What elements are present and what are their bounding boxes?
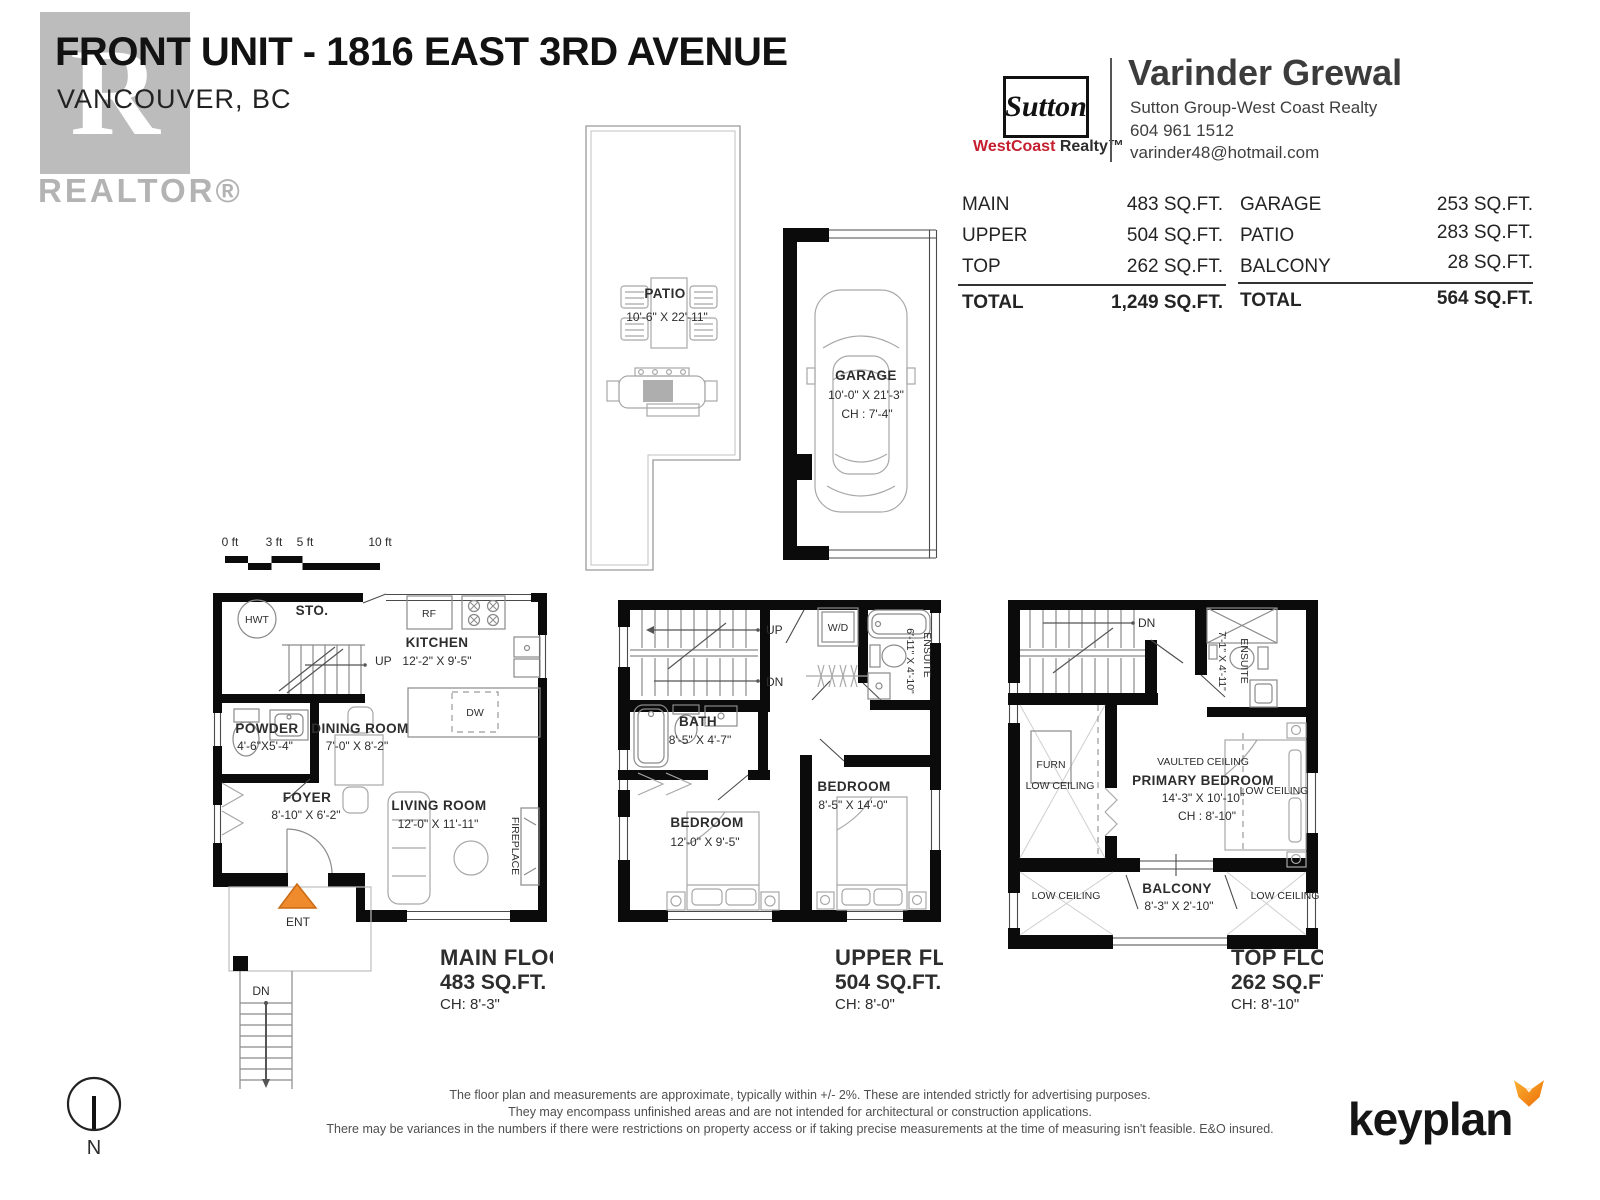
- floor-area-upper: 504 SQ.FT.: [835, 971, 941, 994]
- room-dims-foyer: 8'-10" X 6'-2": [271, 808, 340, 822]
- page-title: FRONT UNIT - 1816 EAST 3RD AVENUE: [55, 30, 788, 75]
- bedroom2-furniture: [817, 797, 926, 910]
- label-low-ceiling-bottom-left: LOW CEILING: [1032, 890, 1101, 902]
- realty-text: Realty™: [1055, 138, 1123, 155]
- area-row-value: 283 SQ.FT.: [1378, 222, 1533, 244]
- room-label-bedroom2: BEDROOM: [817, 779, 890, 794]
- floor-title-top: TOP FLOOR: [1231, 945, 1323, 970]
- disclaimer-line-2: They may encompass unfinished areas and …: [200, 1105, 1400, 1119]
- room-label-bath: BATH: [679, 714, 717, 729]
- patio-plan: PATIO 10'-6" X 22'-11": [583, 118, 743, 578]
- room-label-bedroom1: BEDROOM: [670, 815, 743, 830]
- area-row-label: PATIO: [1240, 225, 1294, 247]
- room-label-foyer: FOYER: [283, 790, 332, 805]
- header-divider: [1110, 58, 1112, 162]
- scale-label-0: 0 ft: [222, 535, 239, 549]
- room-label-patio: PATIO: [644, 286, 685, 301]
- realtor-wordmark: REALTOR®: [38, 172, 243, 210]
- label-up: UP: [375, 654, 392, 668]
- label-low-ceiling-bottom-right: LOW CEILING: [1251, 890, 1320, 902]
- agent-email: varinder48@hotmail.com: [1130, 143, 1319, 163]
- area-summary-table: MAIN 483 SQ.FT. UPPER 504 SQ.FT. TOP 262…: [948, 188, 1538, 318]
- area-total-value: 564 SQ.FT.: [1378, 288, 1533, 310]
- upper-floor-walls: [618, 600, 941, 922]
- keyplan-wordmark: keyplan: [1348, 1093, 1512, 1145]
- main-floor-walls: [213, 593, 547, 922]
- room-label-garage: GARAGE: [835, 368, 897, 383]
- room-dims-dining: 7'-0" X 8'-2": [326, 739, 388, 753]
- label-low-ceiling-upper-left: LOW CEILING: [1026, 780, 1095, 792]
- label-ent: ENT: [286, 915, 311, 929]
- patio-bbq: [607, 368, 717, 416]
- label-fireplace: FIREPLACE: [509, 817, 521, 875]
- top-floor-plan: DN ENSUITE 7'-1" X 4'-11" FURN LOW CEILI…: [1003, 593, 1323, 1013]
- page-subtitle: VANCOUVER, BC: [57, 84, 292, 115]
- room-dims-balcony: 8'-3" X 2'-10": [1144, 899, 1213, 913]
- scale-bar: 0 ft 3 ft 5 ft 10 ft: [212, 532, 392, 577]
- area-row-label: MAIN: [962, 194, 1010, 216]
- label-hwt: HWT: [245, 614, 269, 626]
- agent-company: Sutton Group-West Coast Realty: [1130, 98, 1377, 118]
- label-vaulted-ceiling: VAULTED CEILING: [1157, 756, 1249, 768]
- floorplan-flyer: R REALTOR® FRONT UNIT - 1816 EAST 3RD AV…: [0, 0, 1600, 1200]
- room-label-kitchen: KITCHEN: [406, 635, 469, 650]
- label-dw: DW: [466, 707, 484, 719]
- floor-title-upper: UPPER FLOOR: [835, 945, 943, 970]
- area-row-value: 262 SQ.FT.: [1078, 256, 1223, 278]
- room-label-ensuite: ENSUITE: [1238, 638, 1250, 684]
- label-up: UP: [766, 623, 783, 637]
- area-row-value: 28 SQ.FT.: [1378, 252, 1533, 274]
- table-rule: [1238, 282, 1533, 284]
- room-label-powder: POWDER: [235, 721, 298, 736]
- disclaimer-line-3: There may be variances in the numbers if…: [200, 1122, 1400, 1136]
- area-total-label: TOTAL: [1240, 290, 1302, 312]
- table-rule: [958, 284, 1226, 286]
- label-furn: FURN: [1036, 759, 1065, 771]
- fireplace: [521, 808, 539, 885]
- room-label-balcony: BALCONY: [1142, 881, 1212, 896]
- label-dn: DN: [252, 984, 269, 998]
- floor-area-top: 262 SQ.FT.: [1231, 971, 1323, 994]
- main-floor-stairs: [279, 645, 367, 694]
- main-floor-plan: HWT RF DW: [213, 593, 553, 1098]
- room-dims-garage: 10'-0" X 21'-3": [828, 388, 904, 402]
- agent-phone: 604 961 1512: [1130, 121, 1234, 141]
- area-total-label: TOTAL: [962, 292, 1024, 314]
- area-row-label: UPPER: [962, 225, 1027, 247]
- hwt-tank: HWT: [238, 600, 276, 638]
- room-dims-bath: 8'-5" X 4'-7": [669, 733, 731, 747]
- sutton-logo-text: Sutton: [1005, 90, 1087, 124]
- scale-bar-segments: [225, 556, 380, 570]
- north-arrow: N: [58, 1048, 134, 1163]
- upper-floor-plan: UP DN W/D ENSUITE 6'-11" X 4'-10" BATH 8…: [608, 593, 943, 1013]
- area-row-value: 483 SQ.FT.: [1078, 194, 1223, 216]
- westcoast-text: WestCoast: [973, 138, 1055, 155]
- north-label: N: [87, 1137, 101, 1159]
- scale-label-10: 10 ft: [368, 535, 392, 549]
- label-wd: W/D: [828, 622, 849, 634]
- area-row-label: BALCONY: [1240, 256, 1331, 278]
- floor-ch-main: CH: 8'-3": [440, 996, 500, 1013]
- disclaimer-line-1: The floor plan and measurements are appr…: [200, 1088, 1400, 1102]
- sutton-westcoast-realty: WestCoast Realty™: [973, 138, 1118, 156]
- room-dims-kitchen: 12'-2" X 9'-5": [402, 654, 471, 668]
- floor-area-main: 483 SQ.FT.: [440, 971, 546, 994]
- top-stairs: [1020, 610, 1145, 693]
- keyplan-logo: keyplan: [1348, 1080, 1544, 1146]
- label-rf: RF: [422, 608, 436, 620]
- room-ch-garage: CH : 7'-4": [841, 407, 892, 421]
- room-dims-living: 12'-0" X 11'-11": [398, 817, 479, 831]
- area-total-value: 1,249 SQ.FT.: [1078, 292, 1223, 314]
- room-dims-patio: 10'-6" X 22'-11": [626, 310, 708, 324]
- floor-ch-upper: CH: 8'-0": [835, 996, 895, 1013]
- label-sto: STO.: [296, 603, 329, 618]
- sutton-logo: Sutton: [1003, 76, 1089, 138]
- room-ch-primary-bedroom: CH : 8'-10": [1178, 809, 1236, 823]
- room-label-dining: DINING ROOM: [311, 721, 408, 736]
- keyplan-fox-icon: [1514, 1080, 1544, 1107]
- room-dims-primary-bedroom: 14'-3" X 10'-10": [1162, 791, 1244, 805]
- upper-stairs: [630, 610, 760, 696]
- room-label-ensuite: ENSUITE: [921, 632, 933, 678]
- room-label-living: LIVING ROOM: [391, 798, 486, 813]
- room-dims-bedroom1: 12'-0" X 9'-5": [670, 835, 739, 849]
- agent-name: Varinder Grewal: [1128, 52, 1402, 94]
- garage-plan: GARAGE 10'-0" X 21'-3" CH : 7'-4": [783, 228, 939, 560]
- floor-title-main: MAIN FLOOR: [440, 945, 553, 970]
- label-dn: DN: [766, 675, 783, 689]
- area-row-value: 504 SQ.FT.: [1078, 225, 1223, 247]
- area-row-value: 253 SQ.FT.: [1378, 194, 1533, 216]
- area-row-label: GARAGE: [1240, 194, 1321, 216]
- area-row-label: TOP: [962, 256, 1001, 278]
- label-low-ceiling-right: LOW CEILING: [1240, 785, 1309, 797]
- room-dims-ensuite: 7'-1" X 4'-11": [1216, 631, 1228, 691]
- room-dims-ensuite: 6'-11" X 4'-10": [904, 628, 916, 694]
- scale-label-3: 3 ft: [266, 535, 283, 549]
- room-dims-powder: 4'-6"X5'-4": [237, 739, 293, 753]
- floor-ch-top: CH: 8'-10": [1231, 996, 1299, 1013]
- room-dims-bedroom2: 8'-5" X 14'-0": [818, 798, 887, 812]
- scale-label-5: 5 ft: [297, 535, 314, 549]
- label-dn: DN: [1138, 616, 1155, 630]
- upper-ensuite-fixtures: [868, 610, 930, 699]
